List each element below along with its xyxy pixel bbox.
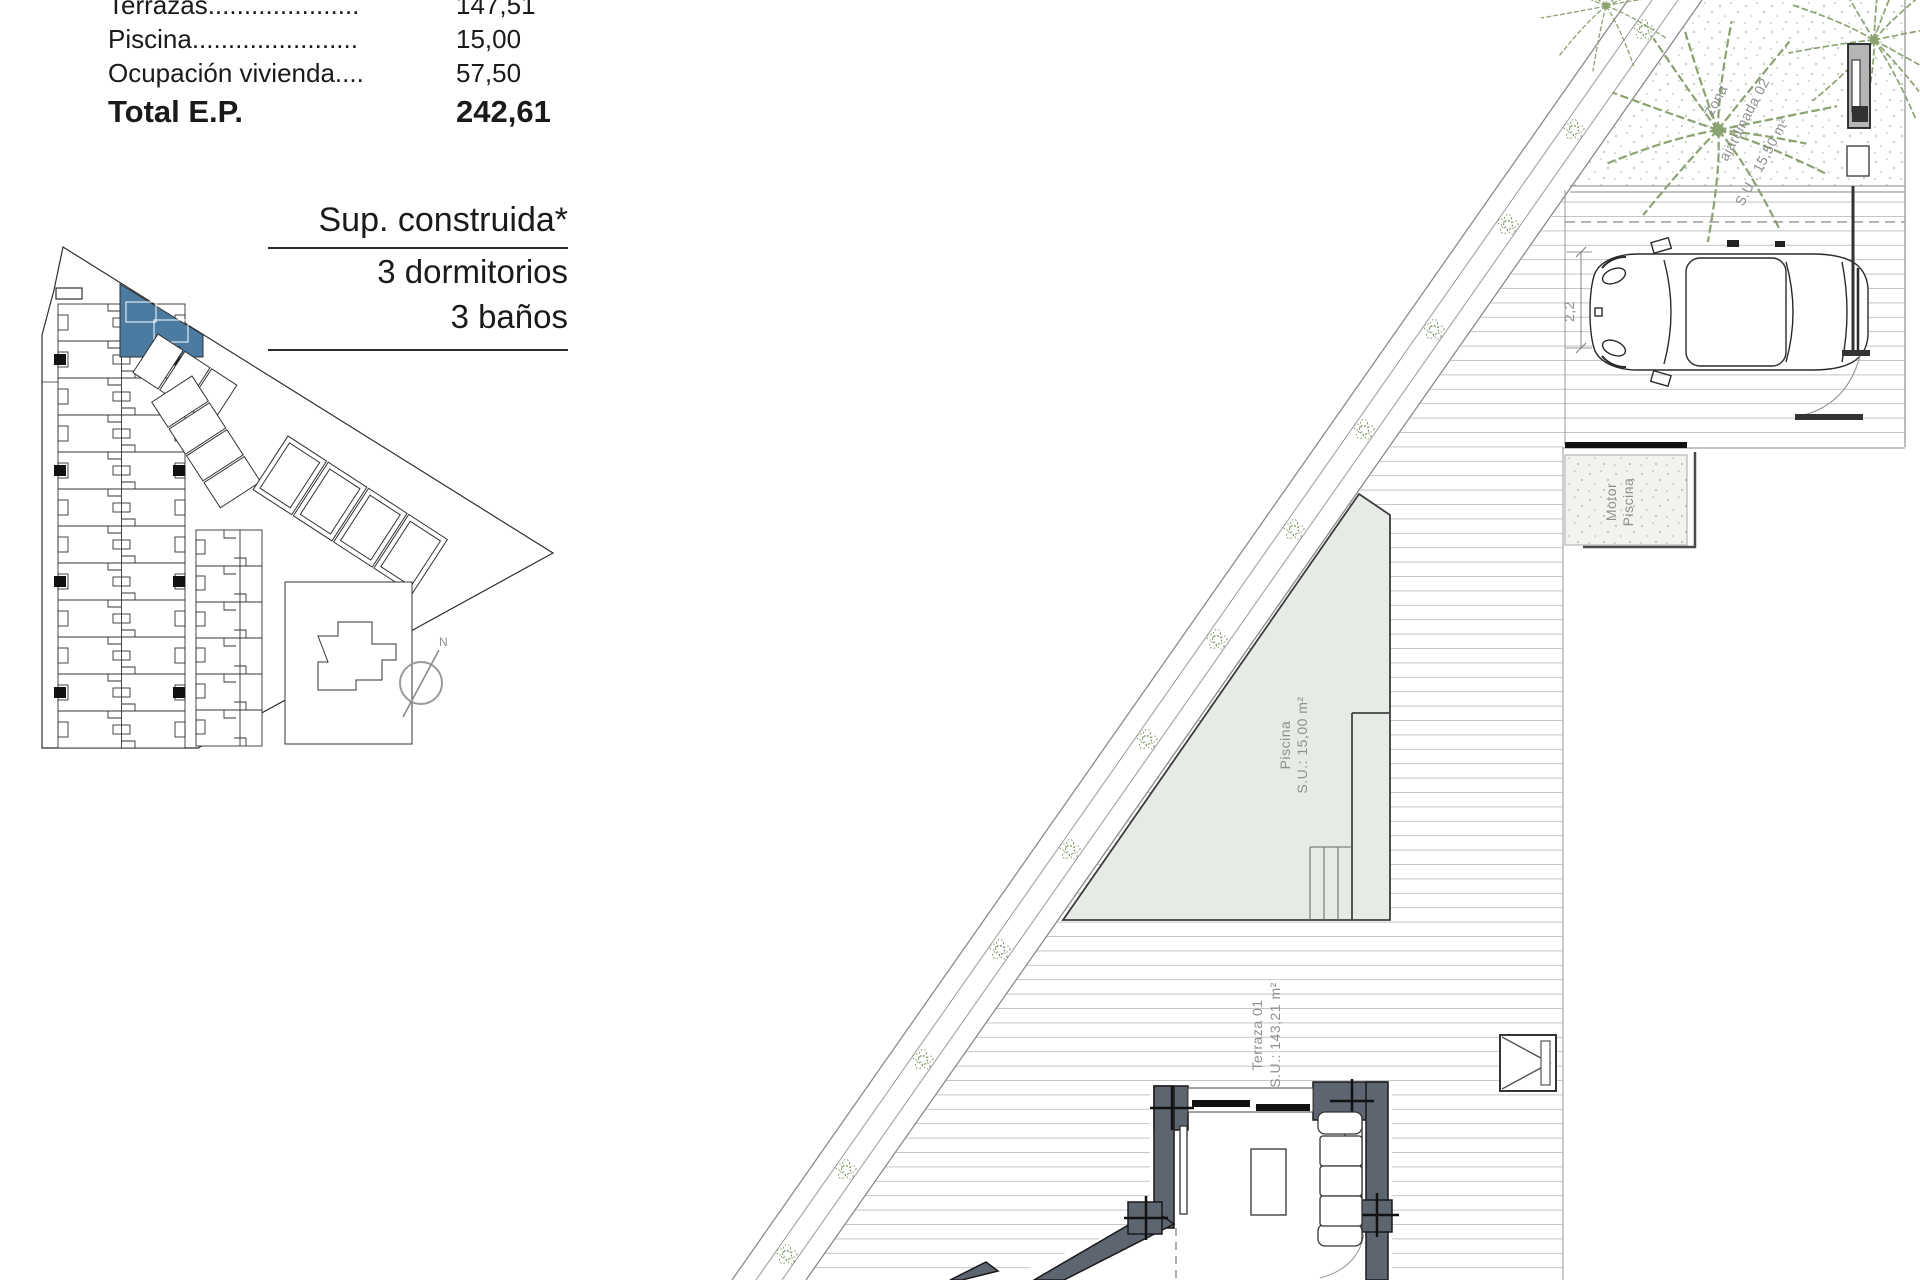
terrace-label-2: S.U.: 143,21 m² (1267, 982, 1283, 1088)
coffee-table (1251, 1149, 1286, 1215)
sofa (1318, 1112, 1362, 1246)
floor-plan: 2,2 (0, 0, 1920, 1280)
carport-dim-label: 2,2 (1561, 301, 1577, 322)
pool-label-1: Piscina (1277, 721, 1293, 770)
pool-equipment-area: Motor Piscina (1565, 452, 1695, 547)
tv-bench (1180, 1126, 1187, 1214)
terrace-label-1: Terraza 01 (1249, 999, 1265, 1070)
sliding-door (1188, 1088, 1313, 1112)
pool-equip-label-2: Piscina (1620, 478, 1636, 527)
pool-label-2: S.U.: 15,00 m² (1294, 696, 1310, 793)
floorplan-page: { "area_table": { "rows": [ {"label": "T… (0, 0, 1920, 1280)
boundary-wall-windows (1847, 44, 1870, 176)
car-icon (1590, 238, 1868, 387)
living-room-furniture (1180, 1112, 1362, 1246)
pool (1063, 494, 1390, 920)
pool-equip-label-1: Motor (1603, 483, 1619, 521)
hatch-square (1500, 1035, 1556, 1091)
